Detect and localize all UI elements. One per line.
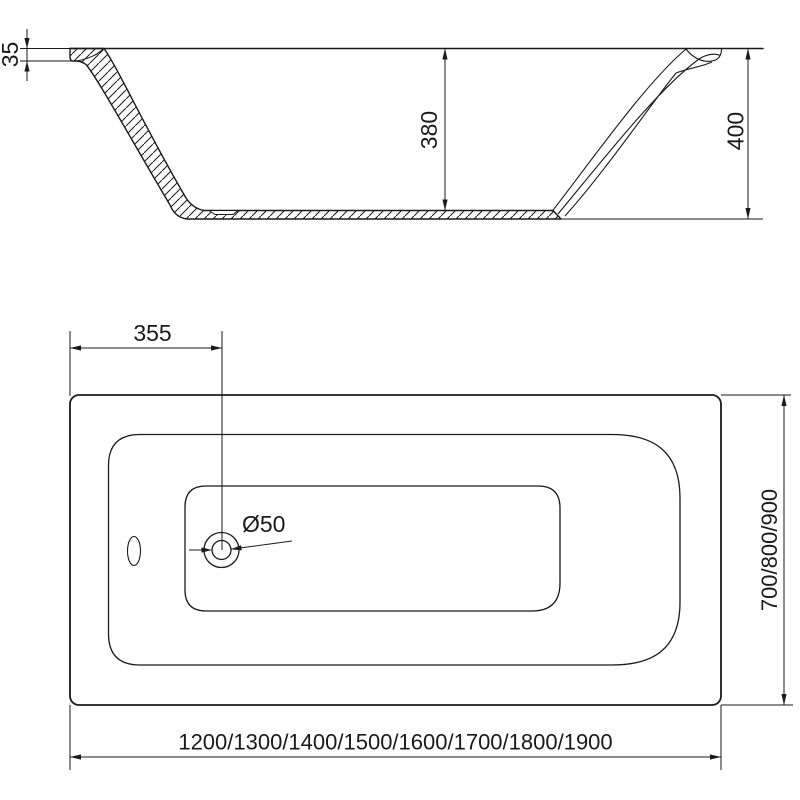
end-wall-line-middle [558, 54, 721, 214]
arrow-right-icon [202, 547, 213, 552]
dim-width-options-label: 700/800/900 [757, 489, 782, 611]
drain-diameter-label: Ø50 [242, 511, 285, 537]
arrow-up-icon [745, 49, 750, 60]
arrow-left-icon [70, 754, 81, 759]
overflow-hole [128, 537, 141, 566]
dim-drain-diameter-leader [231, 541, 293, 549]
bathtub-section-view: 35 380 400 [0, 29, 763, 219]
arrow-down-icon [24, 38, 29, 49]
dim-length-options-label: 1200/1300/1400/1500/1600/1700/1800/1900 [178, 730, 612, 755]
dim-drain-offset-label: 355 [133, 320, 171, 346]
arrow-up-icon [24, 61, 29, 72]
end-wall-rim-curl-accent [676, 62, 712, 73]
dim-overall-height: 400 [723, 49, 751, 220]
arrow-down-icon [745, 208, 750, 219]
arrow-up-icon [781, 395, 786, 406]
end-wall-line-inner [565, 73, 676, 216]
dim-inner-depth: 380 [416, 49, 448, 211]
technical-drawing-page: { "drawing": { "background": "#ffffff", … [0, 0, 800, 800]
arrow-down-icon [442, 200, 447, 211]
dim-inner-depth-label: 380 [416, 111, 442, 149]
dim-rim-drop: 35 [0, 29, 72, 81]
dim-width-options: 700/800/900 [721, 395, 793, 705]
arrow-down-icon [781, 694, 786, 705]
dim-rim-drop-label: 35 [0, 42, 23, 68]
plan-outer-rim [70, 395, 721, 705]
dim-overall-height-label: 400 [723, 112, 749, 150]
arrow-right-icon [211, 345, 222, 350]
tub-cut-section [70, 49, 561, 220]
tub-end-wall-profile [552, 49, 722, 216]
bathtub-plan-view: 355 Ø50 700/800/900 1200/1300/1400/1 [70, 320, 793, 770]
drain-recess [209, 211, 238, 215]
arrow-up-icon [442, 49, 447, 60]
arrow-right-icon [710, 754, 721, 759]
arrow-left-icon [70, 345, 81, 350]
end-wall-line-outer [552, 49, 686, 212]
dim-length-options: 1200/1300/1400/1500/1600/1700/1800/1900 [70, 705, 721, 770]
bathtub-technical-drawing: 35 380 400 [0, 0, 800, 800]
end-wall-rim-curl [686, 49, 722, 61]
